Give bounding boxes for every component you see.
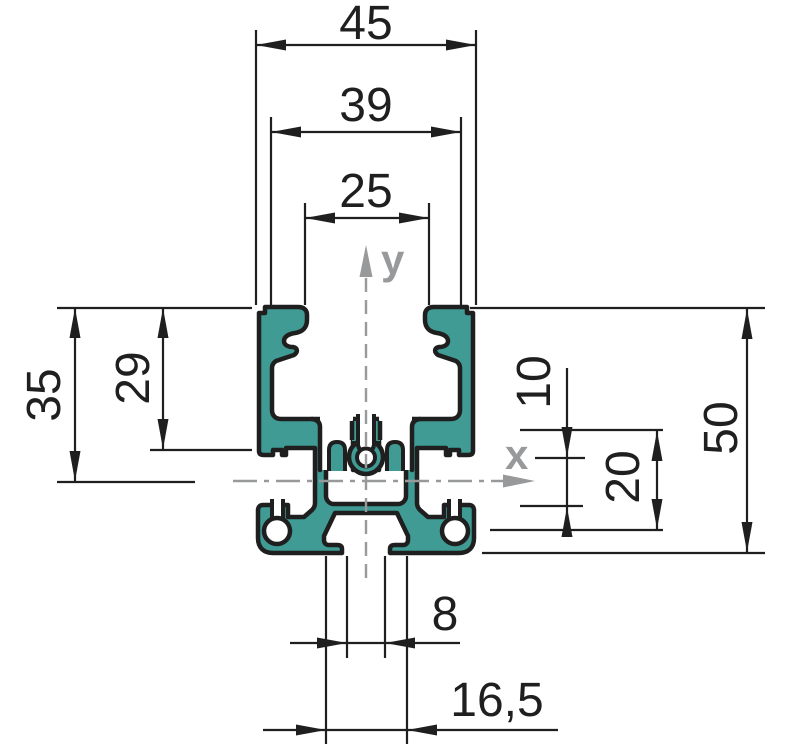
dim-label-channel-mouth-width: 25 xyxy=(339,165,392,218)
dim-label-bottom-slot-width: 8 xyxy=(432,588,459,641)
y-axis-label: y xyxy=(381,236,405,283)
technical-drawing-page: y x xyxy=(0,0,794,750)
dimension-core-height xyxy=(652,431,663,529)
profile-cross-section xyxy=(258,307,474,553)
profile-drawing-canvas: y x xyxy=(0,0,794,750)
right-wing-cavity xyxy=(442,518,468,544)
y-axis-arrow-icon xyxy=(360,245,373,277)
dim-label-core-height: 20 xyxy=(597,450,650,503)
dim-label-channel-depth: 29 xyxy=(107,351,160,404)
dim-label-height-above-axis: 35 xyxy=(18,368,71,421)
x-axis-label: x xyxy=(505,431,529,478)
dimension-height-above-axis xyxy=(70,308,81,481)
dim-label-overall-height: 50 xyxy=(695,401,748,454)
right-finger xyxy=(387,442,403,471)
dim-label-overall-width: 45 xyxy=(339,0,392,50)
left-finger xyxy=(329,442,345,471)
dimension-side-slot-height xyxy=(562,368,573,537)
dim-label-side-slot-height: 10 xyxy=(508,355,561,408)
dimension-lines xyxy=(70,40,753,736)
left-wing-cavity xyxy=(264,518,290,544)
dim-label-channel-inner-width: 39 xyxy=(339,79,392,132)
dim-label-bottom-cavity-width: 16,5 xyxy=(450,674,543,727)
